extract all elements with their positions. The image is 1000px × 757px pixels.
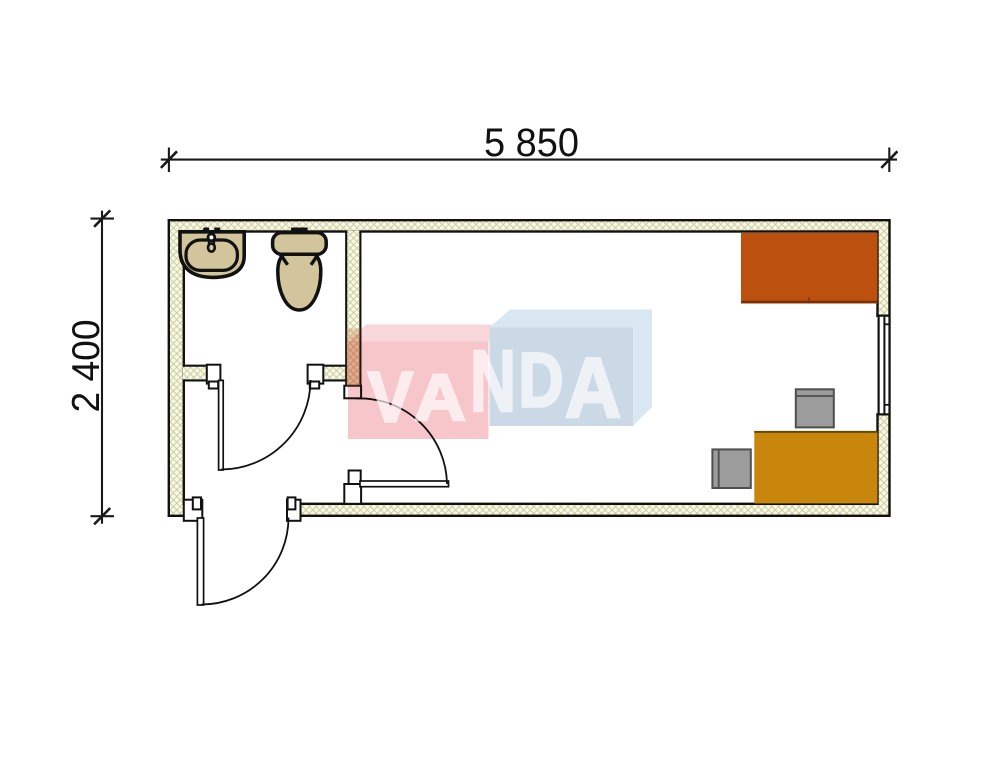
- svg-text:2 400: 2 400: [65, 320, 108, 413]
- svg-text:D: D: [518, 337, 563, 423]
- svg-text:A: A: [414, 360, 465, 434]
- svg-text:V: V: [368, 357, 413, 437]
- svg-text:A: A: [565, 341, 621, 436]
- svg-text:N: N: [470, 333, 516, 430]
- svg-text:5 850: 5 850: [484, 121, 579, 165]
